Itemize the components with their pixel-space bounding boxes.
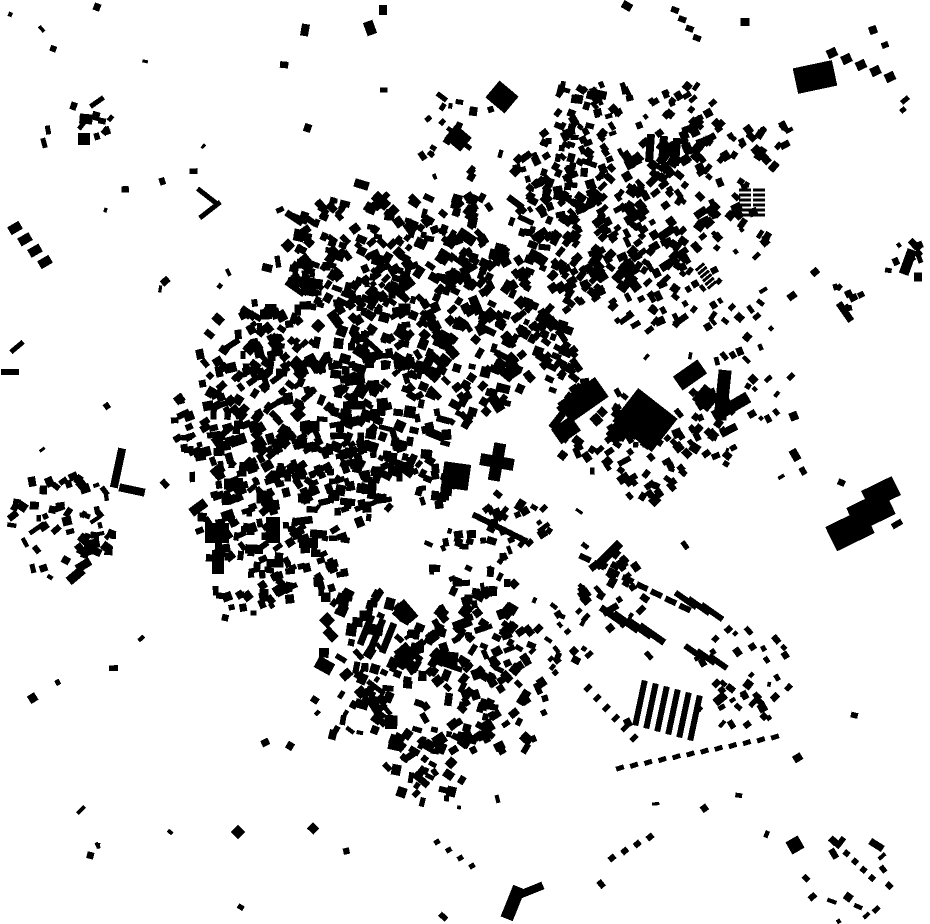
figure-ground-map [0, 0, 930, 924]
map-canvas [0, 0, 930, 924]
